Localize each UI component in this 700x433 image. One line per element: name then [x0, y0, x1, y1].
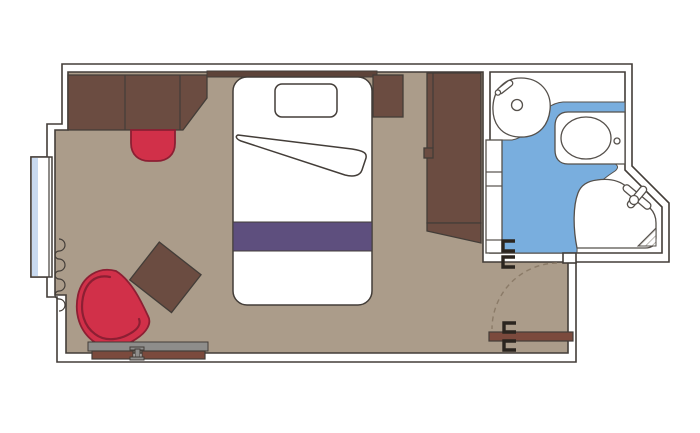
bed-runner	[233, 222, 372, 251]
window-glass	[32, 158, 38, 276]
basin-drain	[512, 100, 523, 111]
pillow	[275, 84, 337, 117]
cabin-floorplan	[0, 0, 700, 433]
nightstand	[373, 75, 403, 117]
vanity-desk	[88, 342, 208, 360]
desk-top	[88, 342, 208, 351]
entrance-door	[489, 332, 573, 341]
wardrobe	[424, 73, 481, 243]
shelf-unit	[486, 140, 502, 253]
flush-button	[614, 138, 620, 144]
shower	[574, 179, 656, 248]
ottoman	[131, 130, 175, 161]
single-bed	[233, 77, 372, 305]
toilet	[555, 112, 625, 164]
sofa	[68, 75, 207, 130]
floorplan-canvas	[0, 0, 700, 433]
toilet-bowl	[561, 117, 611, 159]
headboard-shelf	[207, 71, 377, 77]
washbasin	[493, 78, 550, 137]
bathroom-door-jamb	[563, 253, 576, 263]
window	[31, 157, 52, 277]
